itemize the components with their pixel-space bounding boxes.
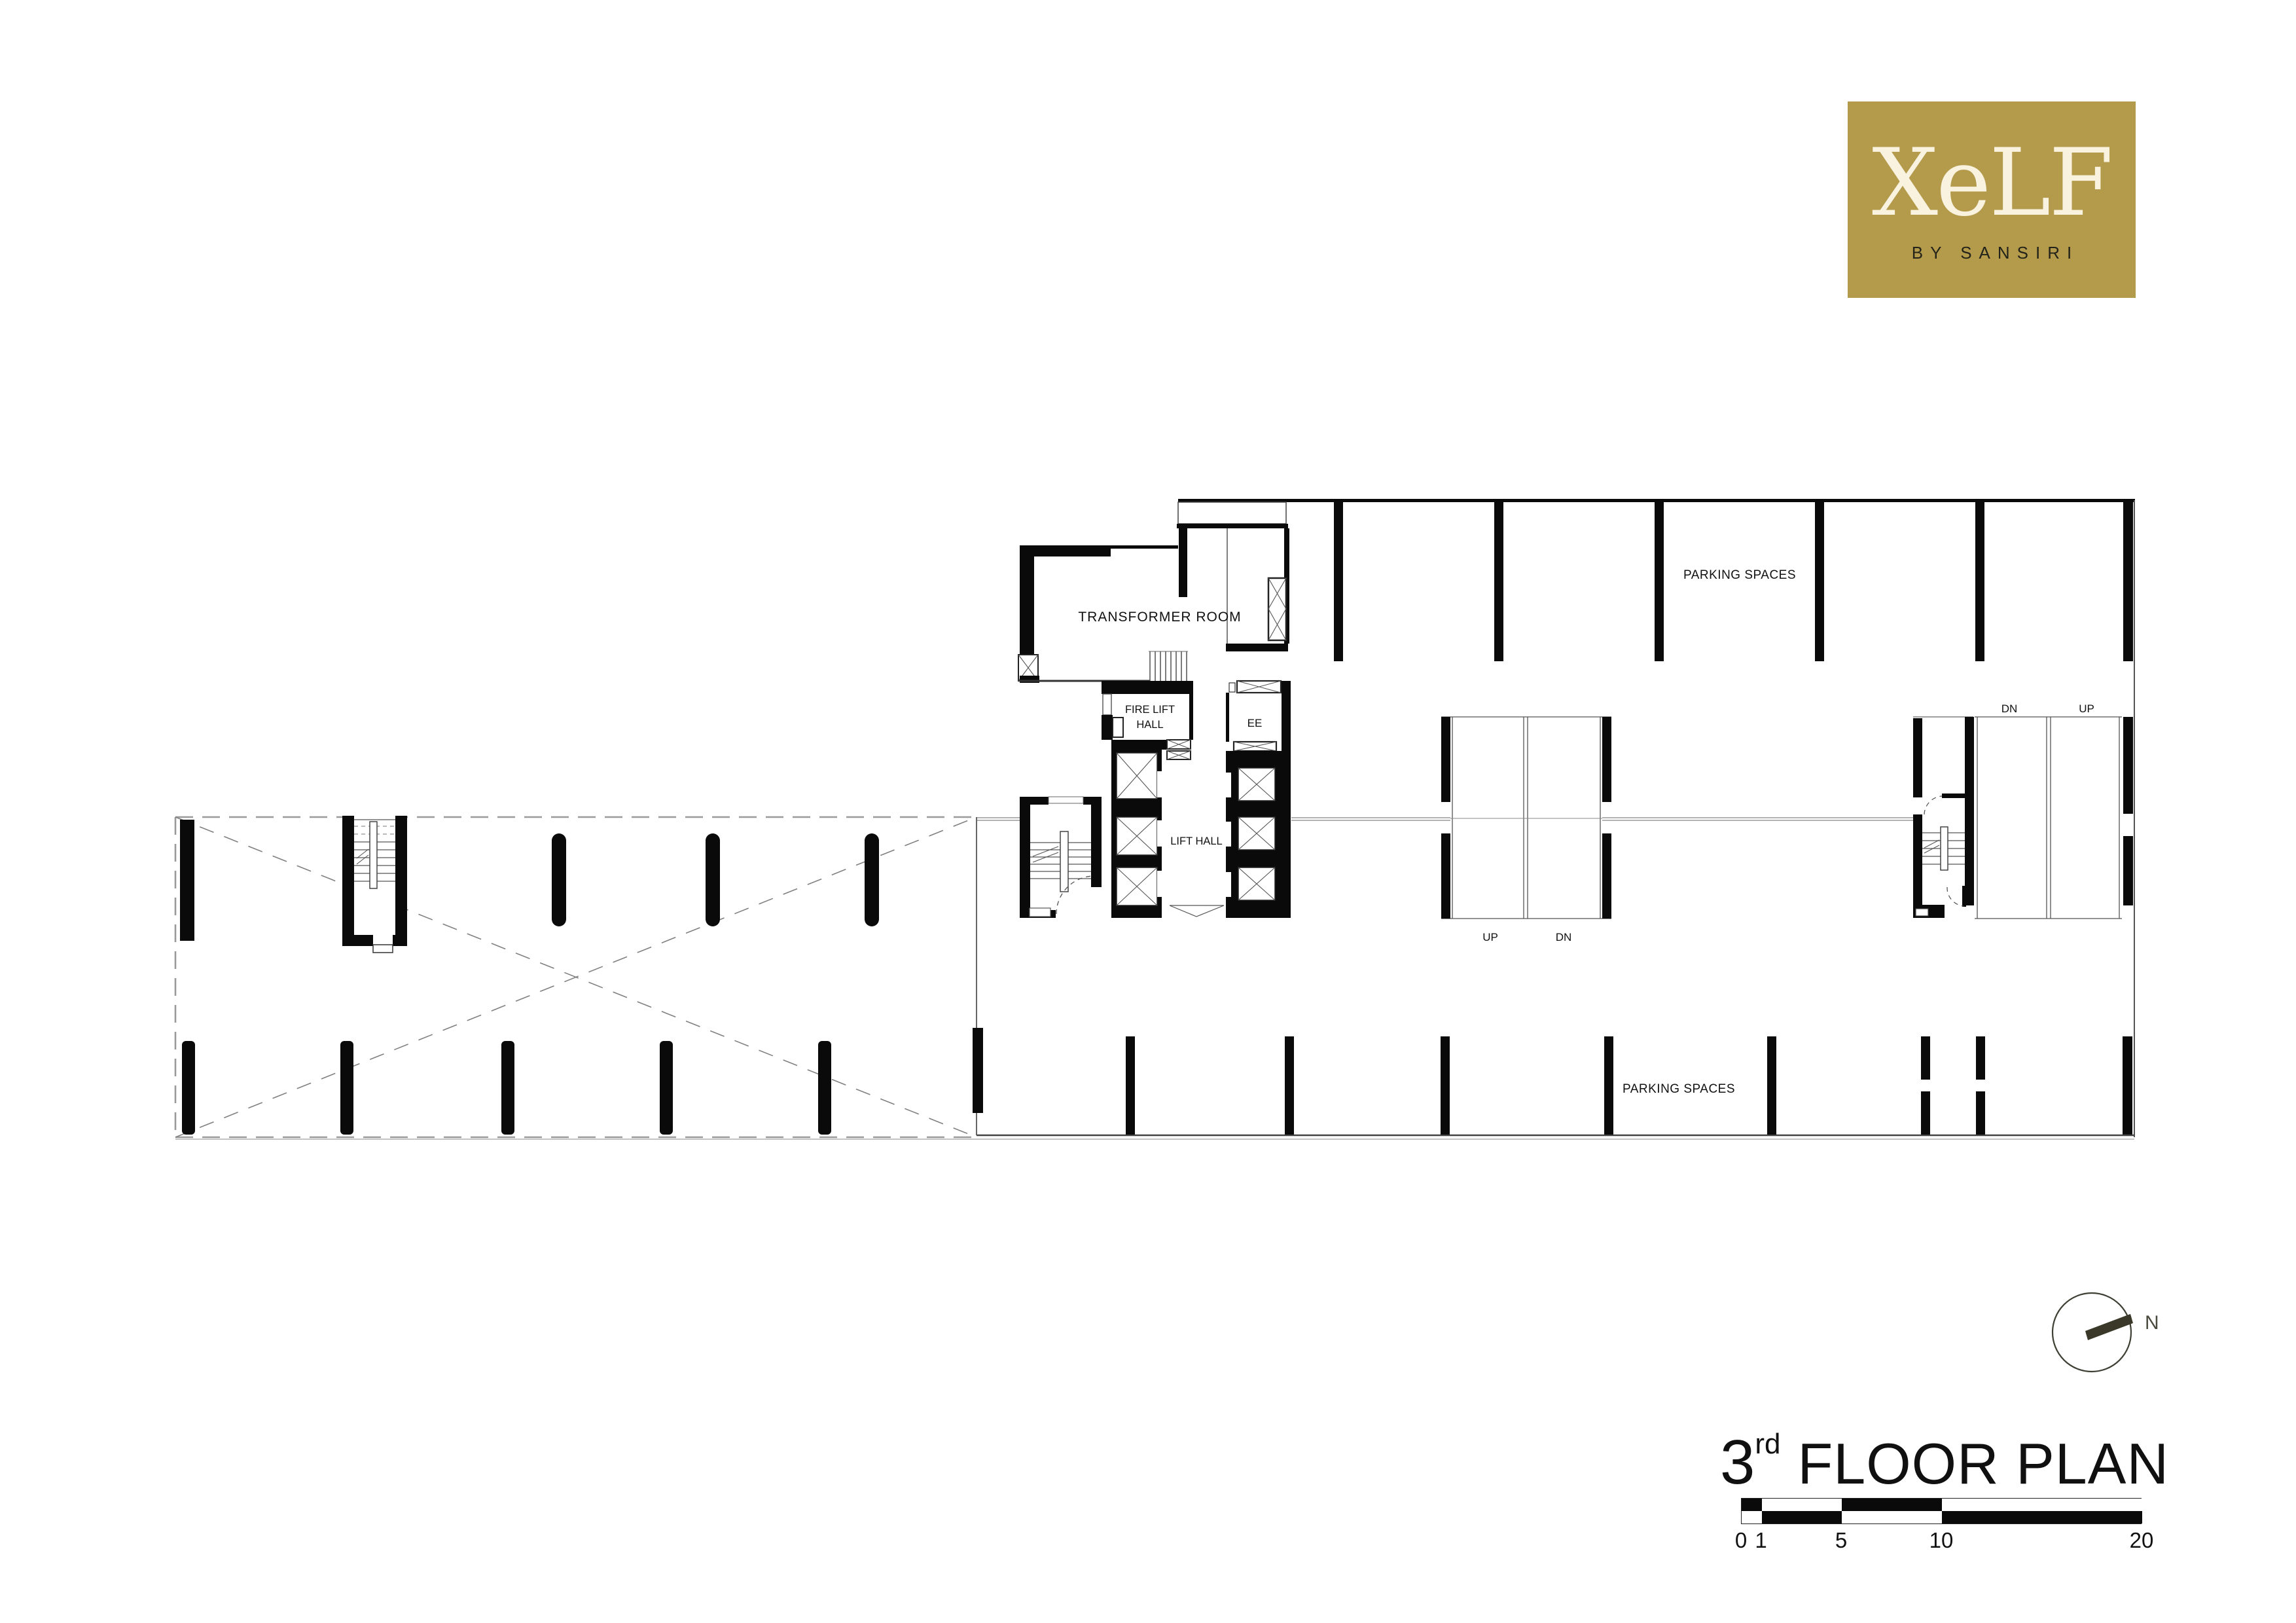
scale-label-1: 1 — [1755, 1528, 1767, 1553]
fire-lift-hall-label2: HALL — [1136, 719, 1163, 731]
scale-bar-labels: 0 1 5 10 20 — [1741, 1528, 2142, 1554]
scale-label-0: 0 — [1735, 1528, 1747, 1553]
scale-label-5: 5 — [1835, 1528, 1847, 1553]
brand-subtitle: BY SANSIRI — [1905, 243, 2079, 263]
right-ramp: DN UP — [1965, 702, 2122, 919]
lift-hall-label: LIFT HALL — [1170, 835, 1222, 847]
brand-logo: XeLF BY SANSIRI — [1848, 101, 2136, 298]
core-stair-room — [1020, 797, 1102, 918]
lift-shaft — [1238, 768, 1275, 900]
parking-top-row — [1334, 502, 1984, 661]
sheet-title: 3 rd FLOOR PLAN — [1720, 1431, 2152, 1494]
scale-label-10: 10 — [1929, 1528, 1954, 1553]
ramp-up-label: UP — [1482, 931, 1498, 943]
parking-bottom-row — [1126, 1036, 1985, 1135]
void-area — [175, 816, 977, 1137]
lift-core: FIRE LIFT HALL EE LIFT HALL — [1102, 681, 1291, 918]
scale-bar — [1741, 1498, 2142, 1524]
floor-plan-sheet: TRANSFORMER ROOM — [0, 0, 2296, 1623]
ramp-right-up-label: UP — [2079, 702, 2094, 715]
fire-lift-hall-label: FIRE LIFT — [1125, 704, 1175, 716]
scale-bar-bottom-row — [1742, 1511, 2141, 1523]
floor-number: 3 — [1720, 1431, 1755, 1494]
sheet-title-text: FLOOR PLAN — [1798, 1435, 2169, 1493]
transformer-room-label: TRANSFORMER ROOM — [1078, 610, 1241, 625]
ramp-right-dn-label: DN — [2001, 702, 2018, 715]
scale-label-20: 20 — [2130, 1528, 2154, 1553]
lift-shaft — [1117, 753, 1157, 905]
central-ramp: UP DN — [1441, 717, 1611, 943]
north-arrow-icon: N — [2053, 1293, 2159, 1372]
ramp-dn-label: DN — [1556, 931, 1572, 943]
right-stair-room — [1913, 717, 1973, 918]
parking-spaces-bottom-label: PARKING SPACES — [1623, 1082, 1735, 1096]
brand-name: XeLF — [1872, 137, 2111, 230]
floor-ordinal: rd — [1755, 1430, 1780, 1459]
void-stair — [342, 816, 407, 953]
parking-spaces-top-label: PARKING SPACES — [1683, 568, 1796, 582]
transformer-room: TRANSFORMER ROOM — [1018, 502, 1289, 683]
ee-label: EE — [1247, 717, 1263, 729]
scale-bar-top-row — [1742, 1499, 2141, 1511]
north-label: N — [2145, 1312, 2159, 1334]
ee-room — [1226, 681, 1281, 751]
